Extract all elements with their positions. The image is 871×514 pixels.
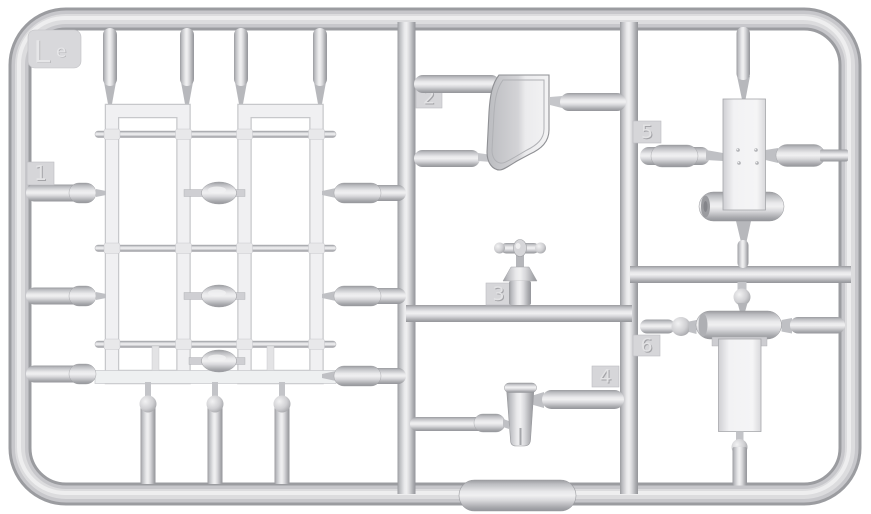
part-1-canopy-frame xyxy=(95,111,336,384)
sprue-photo: L L e e 1 1 2 2 3 3 4 4 5 5 6 6 xyxy=(0,0,871,514)
sprue-svg: L L e e 1 1 2 2 3 3 4 4 5 5 6 6 xyxy=(0,0,871,514)
corner-label-sub: e xyxy=(56,42,66,62)
part-tag-1-number-face: 1 xyxy=(34,161,47,185)
left-runner-arms xyxy=(26,183,106,384)
right-vertical-rail xyxy=(620,22,638,494)
part-tag-3: 3 3 xyxy=(486,283,511,306)
part-tag-5: 5 5 xyxy=(633,121,661,144)
bottom-handle-bar xyxy=(459,480,576,511)
center-horizontal-rail xyxy=(406,305,632,322)
part-6-bracket-plate xyxy=(640,282,845,486)
corner-label-main: L xyxy=(34,36,51,71)
part-tag-1: 1 1 xyxy=(27,161,54,186)
runner-rails xyxy=(398,22,852,511)
part-5-riveted-plate xyxy=(640,27,848,268)
corner-label-tab: L L e e xyxy=(28,30,81,71)
part-2-fender-bracket xyxy=(414,75,626,170)
part-tag-3-number-face: 3 xyxy=(492,283,504,305)
right-runner-arms xyxy=(322,183,406,386)
top-gate-pins xyxy=(103,28,327,104)
part-4-tapered-canister xyxy=(410,383,624,446)
part-tag-5-number-face: 5 xyxy=(641,121,653,143)
part-tag-4-number-face: 4 xyxy=(599,366,611,388)
part-tag-4: 4 4 xyxy=(592,366,619,389)
part-tag-6-number-face: 6 xyxy=(640,335,652,357)
part-tag-6: 6 6 xyxy=(633,335,660,358)
bottom-gate-pins xyxy=(140,382,291,484)
right-horizontal-rail xyxy=(630,266,851,283)
